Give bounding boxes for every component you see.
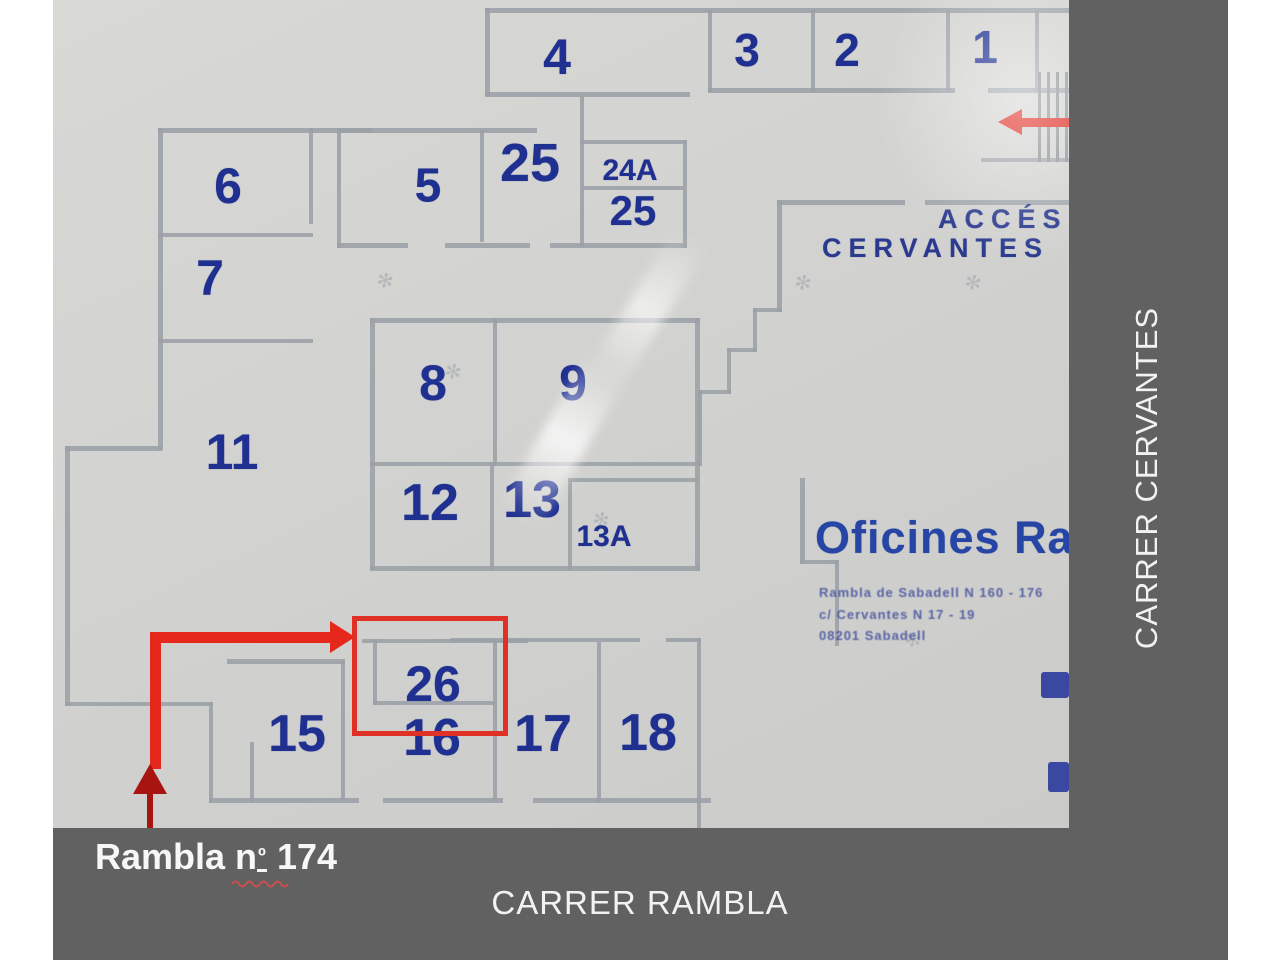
wall — [158, 128, 163, 450]
wall — [550, 243, 687, 248]
plan-address-line: c/ Cervantes N 17 - 19 — [819, 607, 975, 622]
wall — [65, 446, 162, 451]
route-arrow-right-head-icon — [330, 621, 355, 653]
floorplan-photo: ✻ ✻ ✻ ✻ ✻ ✻ 4321652524A2578911121313A261… — [53, 0, 1069, 828]
wall — [727, 348, 757, 352]
room-label-3: 3 — [734, 23, 760, 77]
wall — [493, 318, 497, 466]
access-arrow-left-head-icon — [998, 109, 1022, 135]
wall — [698, 390, 702, 466]
route-arrow-vertical — [150, 632, 161, 769]
wall — [370, 462, 700, 466]
caption-rambla-174: Rambla nº 174 — [95, 836, 337, 878]
wall — [341, 660, 345, 800]
room-label-8: 8 — [419, 354, 447, 412]
wall — [708, 10, 712, 92]
wall — [337, 243, 408, 248]
plan-address-line: Rambla de Sabadell N 160 - 176 — [819, 585, 1043, 600]
room-label-4: 4 — [543, 28, 571, 86]
plan-address-line: 08201 Sabadell — [819, 628, 926, 643]
wall — [65, 446, 70, 706]
room-label-2: 2 — [834, 23, 860, 77]
plan-title: Oficines Rambla — [815, 512, 1069, 564]
room-label-5: 5 — [415, 159, 442, 214]
wall — [337, 128, 341, 248]
room-label-18: 18 — [619, 703, 677, 763]
room-label-17: 17 — [514, 704, 572, 764]
wall — [580, 96, 584, 246]
wall — [65, 702, 213, 706]
wall — [533, 798, 711, 803]
room-label-24A: 24A — [602, 154, 657, 188]
wall — [580, 140, 687, 144]
survey-mark: ✻ — [962, 269, 984, 297]
wall — [568, 478, 572, 570]
room-label-15: 15 — [268, 704, 326, 764]
wall — [209, 702, 213, 802]
wall — [209, 798, 359, 803]
caption-text: Rambla n — [95, 836, 257, 877]
access-arrow-shaft — [1021, 118, 1069, 127]
wall — [753, 308, 757, 352]
room-label-13: 13 — [503, 470, 561, 530]
room-label-6: 6 — [214, 157, 242, 215]
wall — [485, 8, 490, 96]
survey-mark: ✻ — [792, 269, 814, 297]
wall — [158, 233, 313, 237]
room-label-1: 1 — [972, 20, 998, 74]
room-label-9: 9 — [559, 354, 587, 412]
wall — [485, 8, 1069, 13]
room-label-12: 12 — [401, 473, 459, 533]
wall — [370, 566, 700, 571]
wall — [811, 10, 815, 92]
room-label-25: 25 — [500, 132, 560, 194]
wall — [485, 92, 690, 97]
caption-number: 174 — [267, 836, 337, 877]
room-label-13A: 13A — [576, 520, 631, 554]
wall — [727, 348, 731, 394]
street-label-carrer-rambla: CARRER RAMBLA — [491, 884, 788, 922]
wall — [946, 10, 950, 92]
wall — [800, 478, 805, 563]
room-label-11: 11 — [206, 423, 259, 481]
wall — [708, 88, 955, 93]
wall — [698, 390, 731, 394]
wall — [490, 462, 494, 570]
entrance-arrow-stem — [147, 792, 153, 828]
wall — [777, 200, 905, 205]
wall — [370, 318, 700, 323]
wall — [777, 200, 782, 312]
room-label-7: 7 — [196, 249, 224, 307]
ordinal-indicator: º — [257, 843, 267, 872]
wall — [309, 128, 313, 224]
wall — [383, 798, 503, 803]
glare — [586, 228, 708, 392]
spellcheck-squiggle-icon — [231, 878, 289, 888]
wall — [683, 140, 687, 248]
wall — [697, 638, 701, 828]
wall — [370, 318, 375, 570]
street-label-carrer-cervantes: CARRER CERVANTES — [1129, 307, 1165, 649]
route-arrow-horizontal — [150, 632, 331, 643]
wall — [250, 742, 254, 802]
wall — [597, 642, 601, 802]
entrance-arrow-up-head-icon — [133, 764, 167, 794]
survey-mark: ✻ — [374, 267, 396, 295]
access-cervantes-line2: CERVANTES — [822, 233, 1049, 264]
wall — [753, 308, 782, 312]
wall — [227, 659, 345, 664]
wall — [158, 339, 313, 343]
wall — [445, 243, 530, 248]
highlight-box-unit26 — [352, 616, 508, 736]
listing-image: ✻ ✻ ✻ ✻ ✻ ✻ 4321652524A2578911121313A261… — [0, 0, 1280, 960]
wall — [568, 478, 698, 482]
room-label-25: 25 — [610, 187, 657, 235]
plan-symbol — [1041, 672, 1069, 698]
wall — [666, 638, 701, 642]
stairs — [1038, 72, 1069, 162]
wall — [158, 128, 372, 133]
wall — [480, 130, 484, 242]
plan-symbol — [1048, 762, 1069, 792]
access-cervantes-line1: ACCÉS — [938, 204, 1068, 235]
